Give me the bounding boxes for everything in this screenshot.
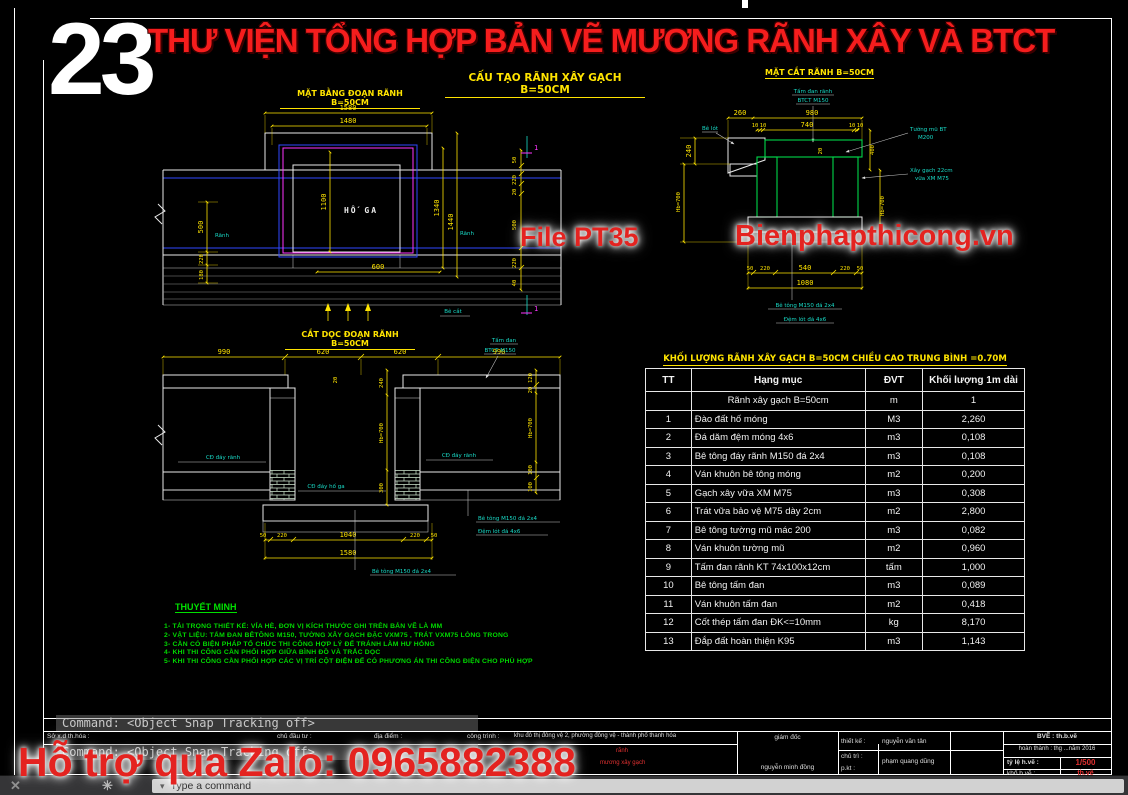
svg-text:20: 20 bbox=[818, 148, 824, 155]
svg-text:1: 1 bbox=[534, 144, 538, 152]
table-cell: 0,108 bbox=[923, 447, 1025, 466]
table-cell: 1 bbox=[923, 392, 1025, 411]
svg-text:120: 120 bbox=[528, 373, 534, 383]
svg-text:220: 220 bbox=[277, 533, 287, 539]
svg-text:1580: 1580 bbox=[340, 104, 357, 112]
svg-text:M200: M200 bbox=[918, 135, 934, 141]
plan-drawing: HỐ GA 1580 1480 1100 600 500 220 180 134… bbox=[148, 100, 578, 335]
table-row: 13Đắp đất hoàn thiện K95m31,143 bbox=[646, 632, 1025, 651]
svg-text:BTCT M150: BTCT M150 bbox=[797, 98, 829, 104]
svg-text:Tấm đan: Tấm đan bbox=[491, 337, 517, 344]
svg-text:600: 600 bbox=[372, 263, 385, 271]
table-cell bbox=[646, 392, 692, 411]
table-row: 2Đá dăm đệm móng 4x6m30,108 bbox=[646, 429, 1025, 448]
table-cell: Bê tông tường mũ mác 200 bbox=[691, 521, 865, 540]
table-cell: 1 bbox=[646, 410, 692, 429]
col-item: Hạng mục bbox=[691, 369, 865, 392]
table-cell: m2 bbox=[865, 503, 923, 522]
table-cell: 7 bbox=[646, 521, 692, 540]
table-cell: 0,089 bbox=[923, 577, 1025, 596]
svg-text:Hb=700: Hb=700 bbox=[676, 192, 682, 212]
table-cell: Rãnh xây gạch B=50cm bbox=[691, 392, 865, 411]
tb-red-note-1: rãnh bbox=[616, 748, 628, 754]
svg-text:Rãnh: Rãnh bbox=[215, 233, 230, 239]
table-cell: Đắp đất hoàn thiện K95 bbox=[691, 632, 865, 651]
svg-text:1480: 1480 bbox=[340, 117, 357, 125]
heading-cross: MẶT CẮT RÃNH B=50CM bbox=[752, 68, 887, 79]
watermark-site: Bienphapthicong.vn bbox=[735, 220, 1014, 253]
svg-text:1: 1 bbox=[534, 305, 538, 313]
table-cell: m3 bbox=[865, 521, 923, 540]
svg-text:220: 220 bbox=[512, 175, 518, 185]
table-cell: 1,000 bbox=[923, 558, 1025, 577]
svg-text:980: 980 bbox=[806, 109, 819, 117]
svg-text:220: 220 bbox=[410, 533, 420, 539]
table-cell: 0,418 bbox=[923, 595, 1025, 614]
svg-text:540: 540 bbox=[799, 264, 812, 272]
table-cell: 6 bbox=[646, 503, 692, 522]
quantity-table: TT Hạng mục ĐVT Khối lượng 1m dài Rãnh x… bbox=[645, 368, 1025, 651]
svg-text:10: 10 bbox=[849, 123, 856, 129]
frame-top-tick bbox=[742, 0, 748, 8]
table-cell: m2 bbox=[865, 595, 923, 614]
autocad-canvas: 23 THƯ VIỆN TỔNG HỢP BẢN VẼ MƯƠNG RÃNH X… bbox=[0, 0, 1128, 795]
svg-text:260: 260 bbox=[734, 109, 747, 117]
svg-text:990: 990 bbox=[218, 348, 231, 356]
svg-text:220: 220 bbox=[760, 266, 770, 272]
table-cell: tấm bbox=[865, 558, 923, 577]
table-row: 9Tấm đan rãnh KT 74x100x12cmtấm1,000 bbox=[646, 558, 1025, 577]
note-line: 1- TẢI TRỌNG THIẾT KẾ: VỈA HÈ, ĐƠN VỊ KÍ… bbox=[164, 623, 533, 632]
table-row: 5Gạch xây vữa XM M75m30,308 bbox=[646, 484, 1025, 503]
table-cell: 2 bbox=[646, 429, 692, 448]
svg-text:Bê tông M150 đá 2x4: Bê tông M150 đá 2x4 bbox=[372, 568, 432, 575]
tb-director-name: nguyễn minh đồng bbox=[737, 764, 838, 771]
table-cell: 10 bbox=[646, 577, 692, 596]
table-cell: 13 bbox=[646, 632, 692, 651]
notes-lines: 1- TẢI TRỌNG THIẾT KẾ: VỈA HÈ, ĐƠN VỊ KÍ… bbox=[164, 623, 533, 667]
table-cell: 0,082 bbox=[923, 521, 1025, 540]
flow-arrows bbox=[325, 303, 371, 321]
svg-text:240: 240 bbox=[379, 378, 385, 388]
svg-text:100: 100 bbox=[528, 465, 534, 475]
svg-text:CĐ đáy rãnh: CĐ đáy rãnh bbox=[442, 452, 477, 459]
svg-text:10: 10 bbox=[857, 123, 864, 129]
table-row: 7Bê tông tường mũ mác 200m30,082 bbox=[646, 521, 1025, 540]
col-unit: ĐVT bbox=[865, 369, 923, 392]
tb-scale-value: 1/500 bbox=[1061, 758, 1110, 767]
sheet-number: 23 bbox=[48, 16, 151, 103]
table-cell: 2,800 bbox=[923, 503, 1025, 522]
svg-text:220: 220 bbox=[199, 254, 205, 264]
tb-director-label: giám đốc bbox=[737, 734, 838, 741]
frame-top bbox=[90, 18, 1112, 19]
table-cell: 8 bbox=[646, 540, 692, 559]
svg-text:Bê tông M150 đá 2x4: Bê tông M150 đá 2x4 bbox=[775, 302, 835, 309]
svg-text:20: 20 bbox=[528, 387, 534, 394]
frame-right bbox=[1111, 18, 1112, 775]
svg-text:Bê lót: Bê lót bbox=[702, 125, 719, 132]
tb-design-name: nguyễn văn tân bbox=[882, 738, 926, 745]
cross-section-drawing: Tấm đan rãnh BTCT M150 260 980 10 10 740… bbox=[672, 80, 972, 335]
svg-text:Bê cắt: Bê cắt bbox=[444, 308, 462, 315]
svg-text:50: 50 bbox=[857, 266, 864, 272]
table-cell: Ván khuôn tấm đan bbox=[691, 595, 865, 614]
svg-text:240: 240 bbox=[685, 145, 693, 158]
table-row: 8Ván khuôn tường mũm20,960 bbox=[646, 540, 1025, 559]
svg-text:1040: 1040 bbox=[340, 531, 357, 539]
svg-text:500: 500 bbox=[512, 220, 518, 230]
svg-text:CĐ đáy rãnh: CĐ đáy rãnh bbox=[206, 454, 241, 461]
svg-text:100: 100 bbox=[528, 482, 534, 492]
note-line: 2- VẬT LIỆU: TẤM ĐAN BÊTÔNG M150, TƯỜNG … bbox=[164, 632, 533, 641]
table-row: 11Ván khuôn tấm đanm20,418 bbox=[646, 595, 1025, 614]
svg-text:BTCT M150: BTCT M150 bbox=[484, 348, 516, 354]
svg-text:1100: 1100 bbox=[320, 194, 328, 211]
svg-text:Rãnh: Rãnh bbox=[460, 231, 475, 237]
table-cell: 4 bbox=[646, 466, 692, 485]
note-line: 5- KHI THI CÔNG CẦN PHỐI HỢP CÁC VỊ TRÍ … bbox=[164, 658, 533, 667]
table-cell: 0,200 bbox=[923, 466, 1025, 485]
table-row: Rãnh xây gạch B=50cmm1 bbox=[646, 392, 1025, 411]
command-line-1[interactable]: Command: <Object Snap Tracking off> bbox=[56, 715, 478, 731]
svg-text:Hb=700: Hb=700 bbox=[379, 423, 385, 443]
table-cell: m3 bbox=[865, 447, 923, 466]
table-cell: 3 bbox=[646, 447, 692, 466]
table-cell: m2 bbox=[865, 466, 923, 485]
svg-text:50: 50 bbox=[512, 157, 518, 164]
svg-text:10: 10 bbox=[760, 123, 767, 129]
table-cell: 12 bbox=[646, 614, 692, 633]
tb-red-note-2: mương xây gạch bbox=[600, 760, 645, 766]
svg-text:400: 400 bbox=[870, 145, 876, 155]
svg-text:740: 740 bbox=[801, 121, 814, 129]
table-cell: m3 bbox=[865, 577, 923, 596]
table-cell: Cốt thép tấm đan ĐK<=10mm bbox=[691, 614, 865, 633]
tb-lead-label: chủ trì : bbox=[841, 753, 863, 760]
frame-left-outer bbox=[14, 8, 15, 778]
svg-text:50: 50 bbox=[260, 533, 267, 539]
frame-left-inner bbox=[43, 60, 44, 775]
heading-main: CẤU TẠO RÃNH XÂY GẠCH B=50CM bbox=[445, 72, 645, 98]
svg-text:40: 40 bbox=[512, 280, 518, 287]
table-cell: Đào đất hố móng bbox=[691, 410, 865, 429]
table-cell: Ván khuôn tường mũ bbox=[691, 540, 865, 559]
table-cell: 11 bbox=[646, 595, 692, 614]
table-cell: 0,308 bbox=[923, 484, 1025, 503]
table-row: 3Bê tông đáy rãnh M150 đá 2x4m30,108 bbox=[646, 447, 1025, 466]
svg-text:1440: 1440 bbox=[447, 214, 455, 231]
table-cell: Ván khuôn bê tông móng bbox=[691, 466, 865, 485]
svg-text:Bê tông M150 đá 2x4: Bê tông M150 đá 2x4 bbox=[478, 515, 538, 522]
svg-text:20: 20 bbox=[333, 377, 339, 384]
manhole-label: HỐ GA bbox=[344, 204, 378, 215]
table-cell: M3 bbox=[865, 410, 923, 429]
svg-text:50: 50 bbox=[747, 266, 754, 272]
svg-text:Xây gạch 22cm: Xây gạch 22cm bbox=[910, 167, 953, 174]
note-line: 4- KHI THI CÔNG CẦN PHỐI HỢP GIỮA BÌNH Đ… bbox=[164, 649, 533, 658]
table-cell: Bê tông đáy rãnh M150 đá 2x4 bbox=[691, 447, 865, 466]
svg-text:620: 620 bbox=[317, 348, 330, 356]
svg-text:300: 300 bbox=[379, 483, 385, 493]
svg-text:vữa XM M75: vữa XM M75 bbox=[915, 176, 949, 182]
quantity-table-body: Rãnh xây gạch B=50cmm11Đào đất hố móngM3… bbox=[646, 392, 1025, 651]
svg-text:620: 620 bbox=[394, 348, 407, 356]
svg-text:220: 220 bbox=[840, 266, 850, 272]
svg-text:180: 180 bbox=[199, 270, 205, 280]
svg-text:50: 50 bbox=[431, 533, 438, 539]
svg-text:Đệm lót đá 4x6: Đệm lót đá 4x6 bbox=[784, 316, 827, 323]
svg-text:1080: 1080 bbox=[797, 279, 814, 287]
table-cell: m3 bbox=[865, 632, 923, 651]
svg-text:1340: 1340 bbox=[433, 200, 441, 217]
tb-design-label: thiết kế : bbox=[841, 738, 866, 745]
tb-finish-label: hoàn thành : thg ...năm 2016 bbox=[1003, 746, 1111, 752]
long-section-drawing: 990 620 620 990 CĐ đáy rãnh CĐ đáy bbox=[148, 330, 578, 585]
table-cell: m3 bbox=[865, 484, 923, 503]
table-cell: Gạch xây vữa XM M75 bbox=[691, 484, 865, 503]
svg-text:500: 500 bbox=[197, 221, 205, 234]
table-cell: m3 bbox=[865, 429, 923, 448]
table-cell: Trát vữa bảo vệ M75 dày 2cm bbox=[691, 503, 865, 522]
table-row: 4Ván khuôn bê tông móngm20,200 bbox=[646, 466, 1025, 485]
table-cell: m bbox=[865, 392, 923, 411]
table-cell: Bê tông tấm đan bbox=[691, 577, 865, 596]
col-qty: Khối lượng 1m dài bbox=[923, 369, 1025, 392]
svg-text:1580: 1580 bbox=[340, 549, 357, 557]
table-cell: m2 bbox=[865, 540, 923, 559]
tb-drawing-label: BVẼ : th.b.vẽ bbox=[1003, 733, 1111, 740]
table-cell: 5 bbox=[646, 484, 692, 503]
notes-title: THUYẾT MINH bbox=[175, 602, 237, 613]
page-title: THƯ VIỆN TỔNG HỢP BẢN VẼ MƯƠNG RÃNH XÂY … bbox=[148, 22, 1054, 60]
table-cell: 9 bbox=[646, 558, 692, 577]
svg-text:Tấm đan rãnh: Tấm đan rãnh bbox=[793, 88, 833, 95]
heading-table: KHỐI LƯỢNG RÃNH XÂY GẠCH B=50CM CHIỀU CA… bbox=[652, 354, 1018, 366]
table-cell: Đá dăm đệm móng 4x6 bbox=[691, 429, 865, 448]
svg-text:Hb=700: Hb=700 bbox=[880, 196, 886, 216]
table-cell: 8,170 bbox=[923, 614, 1025, 633]
table-cell: Tấm đan rãnh KT 74x100x12cm bbox=[691, 558, 865, 577]
svg-text:CĐ đáy hố ga: CĐ đáy hố ga bbox=[307, 483, 344, 490]
table-cell: 2,260 bbox=[923, 410, 1025, 429]
table-cell: 0,960 bbox=[923, 540, 1025, 559]
table-row: 1Đào đất hố móngM32,260 bbox=[646, 410, 1025, 429]
tb-lead-name: phạm quang dũng bbox=[882, 758, 934, 765]
table-row: 6Trát vữa bảo vệ M75 dày 2cmm22,800 bbox=[646, 503, 1025, 522]
svg-text:Hb=700: Hb=700 bbox=[528, 418, 534, 438]
table-cell: 0,108 bbox=[923, 429, 1025, 448]
svg-text:220: 220 bbox=[512, 258, 518, 268]
svg-text:Tường mũ BT: Tường mũ BT bbox=[909, 126, 947, 133]
svg-text:20: 20 bbox=[512, 189, 518, 196]
table-row: 10Bê tông tấm đanm30,089 bbox=[646, 577, 1025, 596]
table-cell: 1,143 bbox=[923, 632, 1025, 651]
col-tt: TT bbox=[646, 369, 692, 392]
svg-text:10: 10 bbox=[752, 123, 759, 129]
watermark-file: File PT35 bbox=[520, 222, 639, 253]
table-row: 12Cốt thép tấm đan ĐK<=10mmkg8,170 bbox=[646, 614, 1025, 633]
svg-text:Đệm lót đá 4x6: Đệm lót đá 4x6 bbox=[478, 528, 521, 535]
tb-scale-label: tỷ lệ h.vẽ : bbox=[1007, 759, 1039, 766]
table-cell: kg bbox=[865, 614, 923, 633]
watermark-zalo: Hỗ trợ qua Zalo: 0965882388 bbox=[18, 739, 576, 786]
tb-lead-label2: p.kt : bbox=[841, 765, 855, 772]
